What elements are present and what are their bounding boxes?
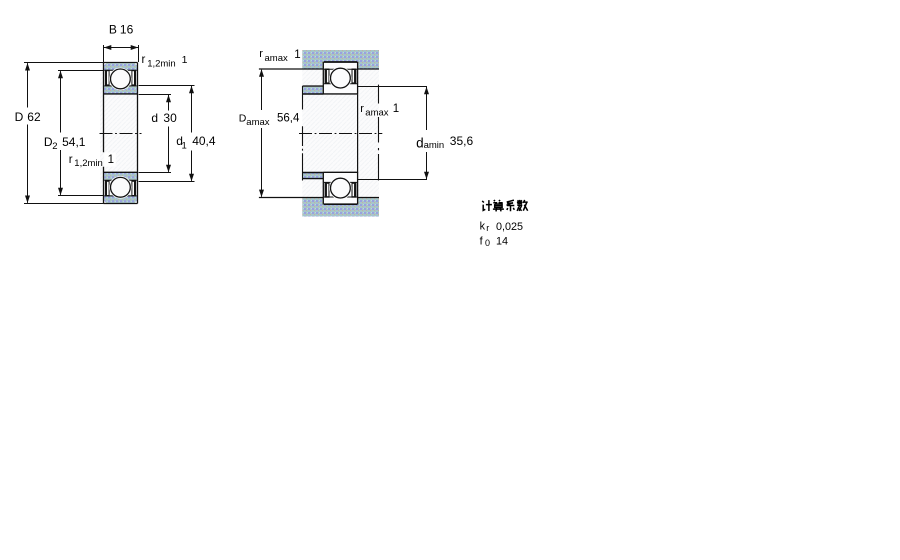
svg-text:amin: amin [424,140,445,151]
svg-text:2: 2 [52,141,57,152]
svg-text:d: d [416,135,424,150]
svg-text:1: 1 [182,54,188,66]
svg-text:16: 16 [120,23,134,37]
svg-text:1: 1 [108,154,114,166]
svg-text:r: r [142,54,146,66]
svg-text:1: 1 [182,140,187,151]
svg-text:35,6: 35,6 [450,134,474,148]
svg-text:54,1: 54,1 [62,135,86,149]
svg-text:30: 30 [163,111,177,125]
svg-text:B: B [109,23,117,37]
svg-text:amax: amax [365,107,388,118]
svg-text:0,025: 0,025 [496,221,523,233]
svg-text:1,2min: 1,2min [74,158,103,169]
svg-text:62: 62 [27,110,41,124]
svg-text:56,4: 56,4 [277,113,300,125]
svg-text:D: D [15,110,24,124]
svg-text:amax: amax [265,53,288,64]
svg-text:1: 1 [393,103,399,115]
svg-text:1,2min: 1,2min [147,58,176,69]
svg-text:r: r [360,103,364,115]
svg-text:r: r [69,154,73,166]
svg-text:1: 1 [294,49,300,61]
svg-text:0: 0 [485,238,490,248]
svg-text:14: 14 [496,235,508,247]
svg-text:amax: amax [246,117,269,128]
svg-text:d: d [151,111,158,125]
svg-text:r: r [259,48,263,60]
svg-text:r: r [486,223,489,233]
svg-text:40,4: 40,4 [192,134,216,148]
svg-text:k: k [480,220,486,232]
